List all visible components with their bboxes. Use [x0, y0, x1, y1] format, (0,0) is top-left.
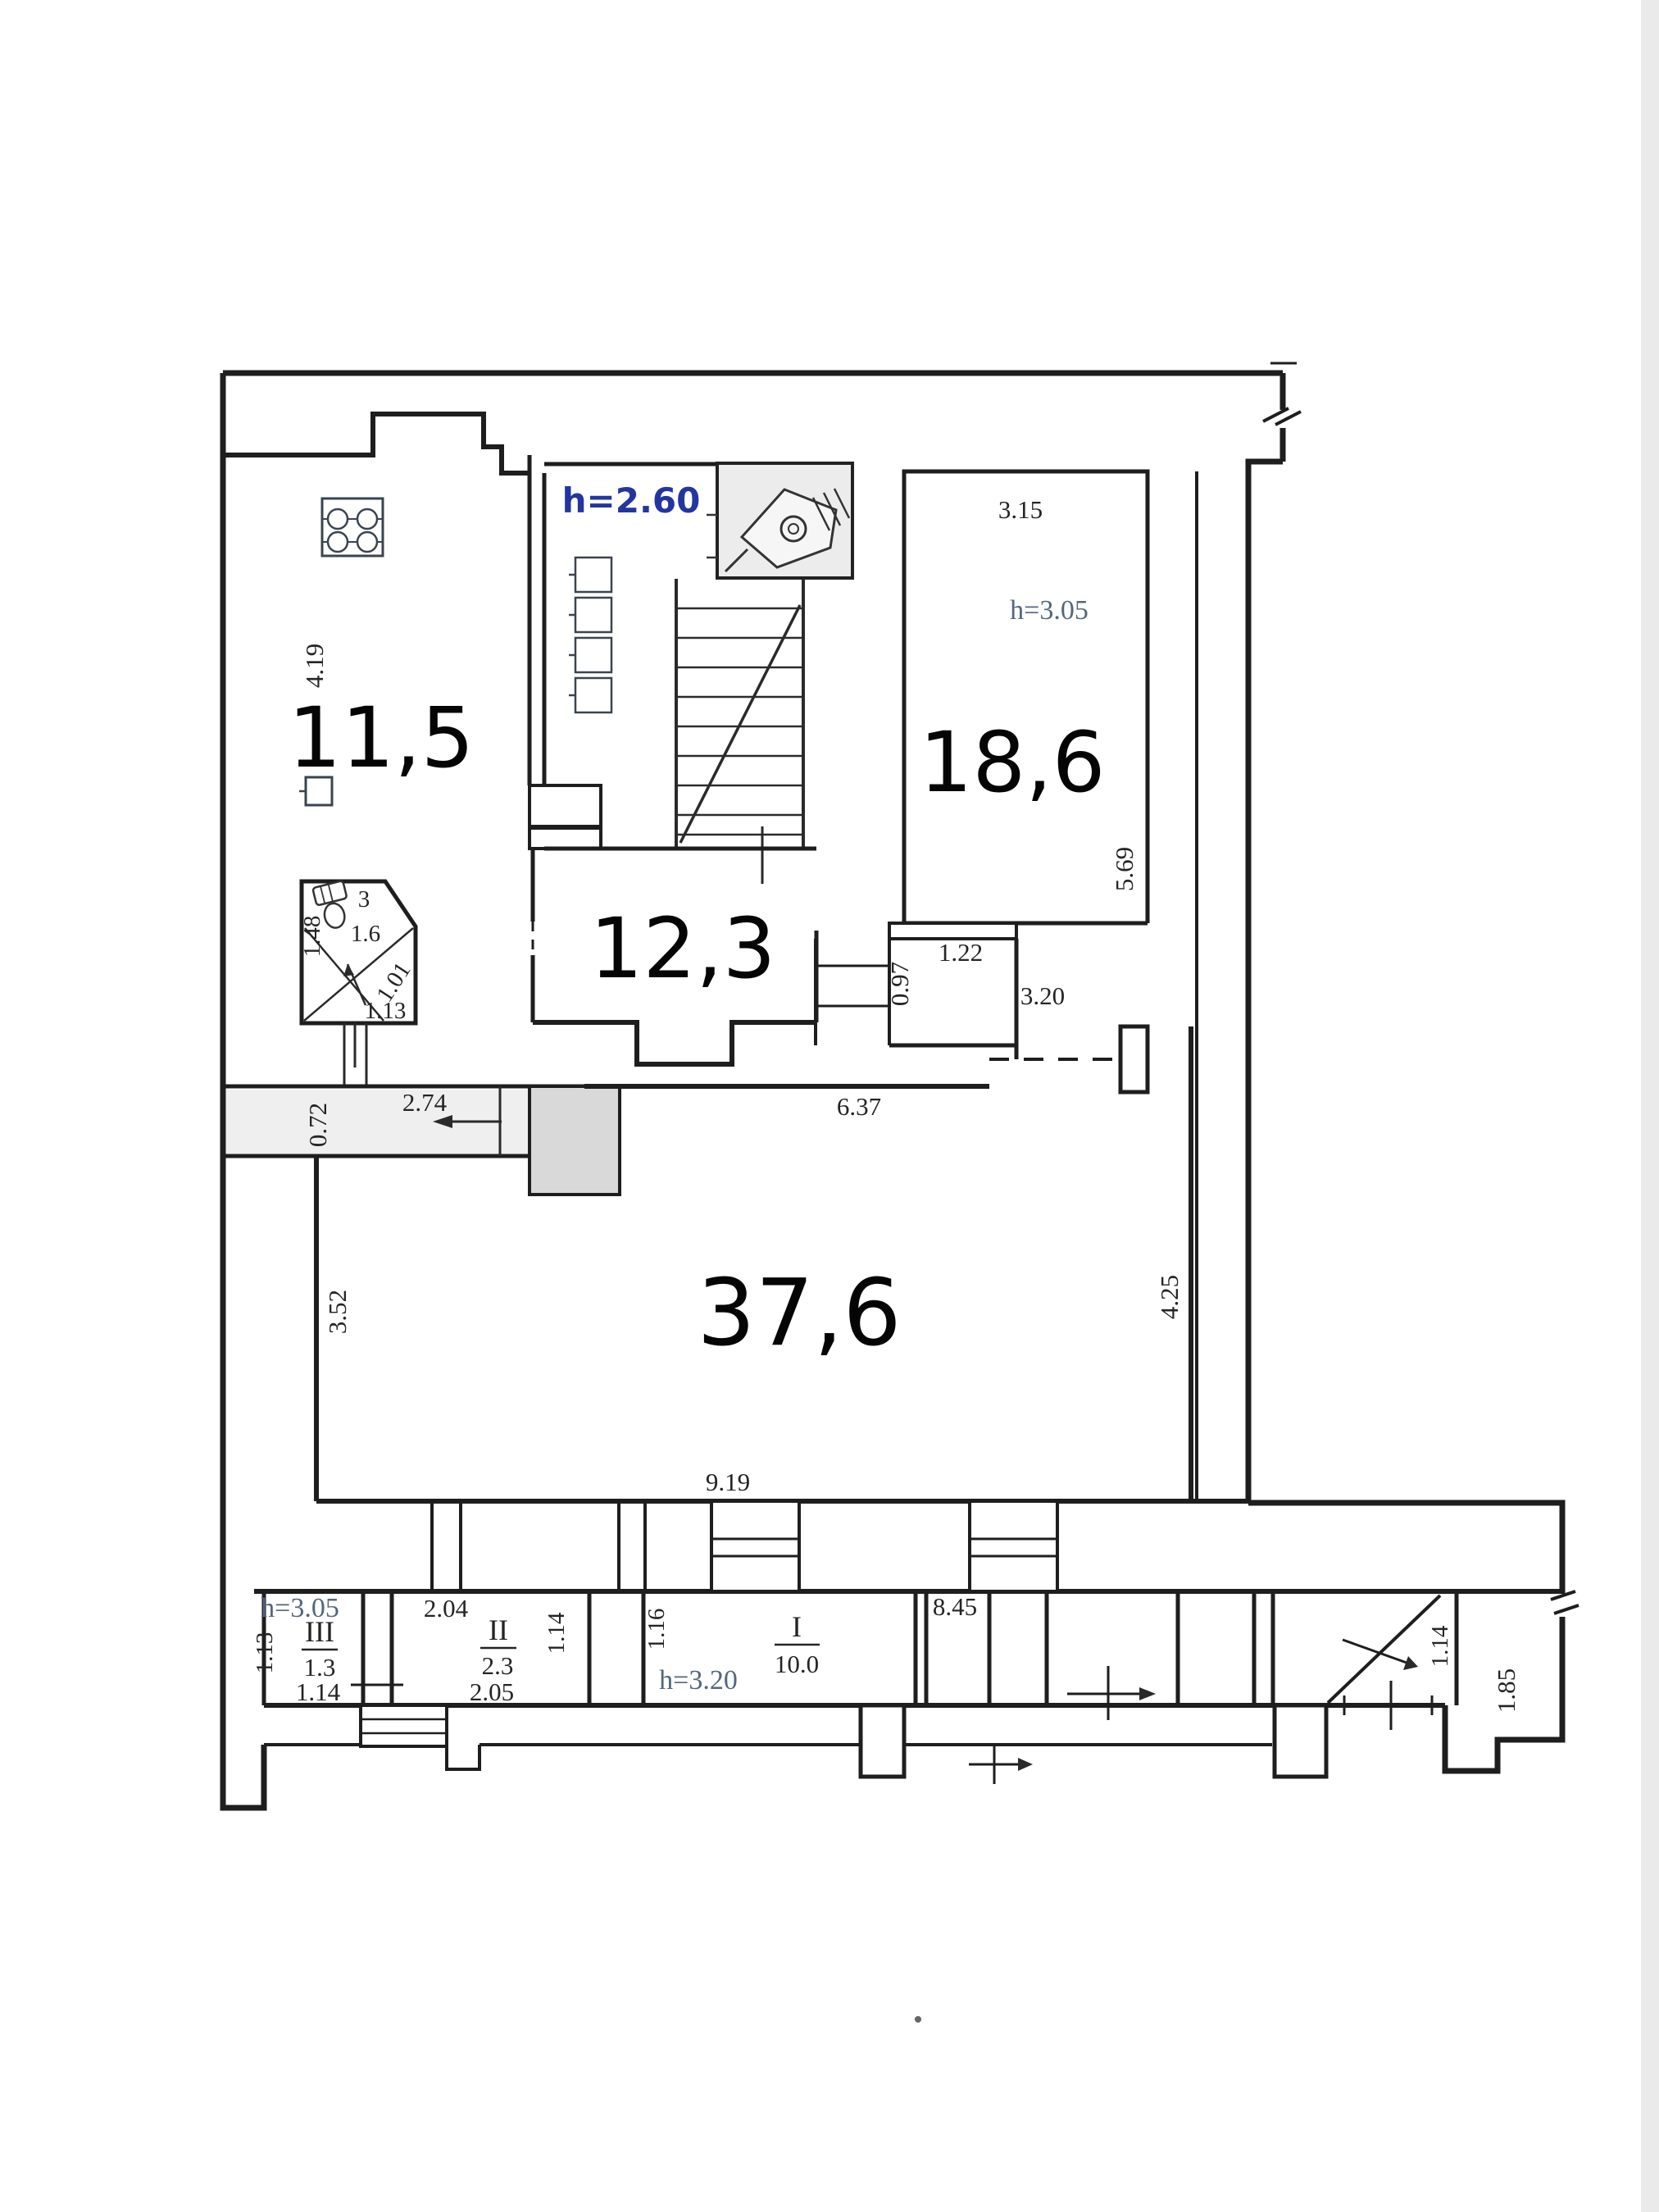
dimension: 3.52 [323, 1290, 352, 1334]
band-walls [432, 1501, 645, 1591]
room-area: 10.0 [775, 1650, 819, 1678]
room-number: III [305, 1615, 334, 1648]
wc-riser-pipes [344, 1023, 366, 1086]
dimension: 5.69 [1110, 847, 1139, 891]
room-area-label: 11,5 [288, 690, 474, 787]
passage-arrow-head [1139, 1687, 1156, 1700]
scanned-floor-plan-page: 11,5 12,3 18,6 37,6 h=2.60 h=3.05 h=3.05… [0, 0, 1659, 2212]
dimension: 1.48 [299, 916, 325, 958]
room-area-label: 18,6 [919, 714, 1105, 812]
break-mark-top-right-icon [1263, 408, 1301, 425]
room-number: II [489, 1613, 508, 1646]
height-label: h=3.20 [659, 1665, 738, 1695]
break-mark-bottom-right-icon [1551, 1591, 1579, 1613]
stair-run-line [680, 605, 800, 843]
floor-plan-drawing: 11,5 12,3 18,6 37,6 h=2.60 h=3.05 h=3.05… [0, 0, 1659, 2212]
divider-end-block [530, 828, 601, 849]
dimension: 9.19 [706, 1468, 750, 1496]
pier-block [1120, 1026, 1148, 1092]
dimension: 1.16 [643, 1609, 670, 1650]
dimension: 3.20 [1020, 981, 1065, 1010]
door-opening-symbol [711, 1501, 799, 1591]
dimension: 2.05 [470, 1677, 514, 1706]
door-opening-symbol [970, 1501, 1057, 1591]
ramp-room [1328, 1595, 1440, 1730]
dimension: 1.85 [1492, 1668, 1520, 1713]
dimension: 1.14 [296, 1677, 341, 1706]
dimension: 1.14 [1427, 1625, 1453, 1667]
outer-wall-right-upper [1248, 373, 1283, 1503]
wall-break-symbols [1263, 363, 1579, 1613]
water-heater-icon [707, 463, 852, 578]
height-label: h=2.60 [562, 480, 701, 521]
duct-shaft [816, 939, 1016, 1059]
room-area-label: 12,3 [589, 900, 775, 998]
dimension: 1.22 [939, 938, 983, 967]
room-area-label: 37,6 [697, 1260, 901, 1367]
divider-end-block [530, 785, 601, 826]
dimension: 1.13 [365, 998, 407, 1024]
ledge-wall [889, 923, 1016, 939]
room-number: I [792, 1610, 802, 1643]
vestibule-block [530, 1086, 620, 1195]
scan-speck [915, 2016, 921, 2023]
exterior-steps-icon [361, 1705, 447, 1746]
strip-room-labels: III 1.3 1.14 1.13 II 2.3 2.05 1.14 1.16 … [252, 1609, 1520, 1714]
porch-block [861, 1705, 904, 1777]
dimension: 1.14 [543, 1612, 570, 1654]
dimension: 8.45 [933, 1592, 977, 1621]
porch-block [1275, 1705, 1326, 1777]
dimension: 4.19 [300, 644, 329, 688]
dimension: 3.15 [998, 495, 1043, 524]
dimension: 2.04 [424, 1594, 469, 1623]
kitchen-hall-divider-wall [530, 455, 544, 785]
staircase [676, 579, 803, 884]
room-12-3-bottom-wall [533, 1022, 816, 1064]
wc-room-area: 1.6 [351, 921, 380, 947]
room-area: 2.3 [482, 1651, 514, 1680]
dimension: 0.97 [885, 962, 914, 1006]
height-label: h=3.05 [1010, 595, 1089, 626]
ground-line-bottom [264, 1745, 1272, 1769]
ramp-diagonal [1328, 1595, 1440, 1703]
stove-icon [322, 498, 383, 556]
dimension: 1.13 [252, 1632, 278, 1674]
entrance-arrow-head [1018, 1758, 1033, 1771]
dimension: 0.72 [303, 1103, 332, 1147]
kitchen-top-stepped-wall [223, 414, 530, 473]
scan-edge-shadow [1641, 0, 1659, 2212]
room-area-labels: 11,5 12,3 18,6 37,6 [288, 690, 1105, 1367]
sink-units-icon [569, 558, 611, 712]
dimension-labels: 4.19 3.15 5.69 3 1.6 1.48 1.01 1.13 1.22… [299, 495, 1184, 1623]
dimension: 6.37 [837, 1092, 881, 1121]
wc-room-number: 3 [358, 886, 370, 913]
dimension: 4.25 [1155, 1275, 1184, 1319]
dimension: 2.74 [402, 1088, 448, 1117]
